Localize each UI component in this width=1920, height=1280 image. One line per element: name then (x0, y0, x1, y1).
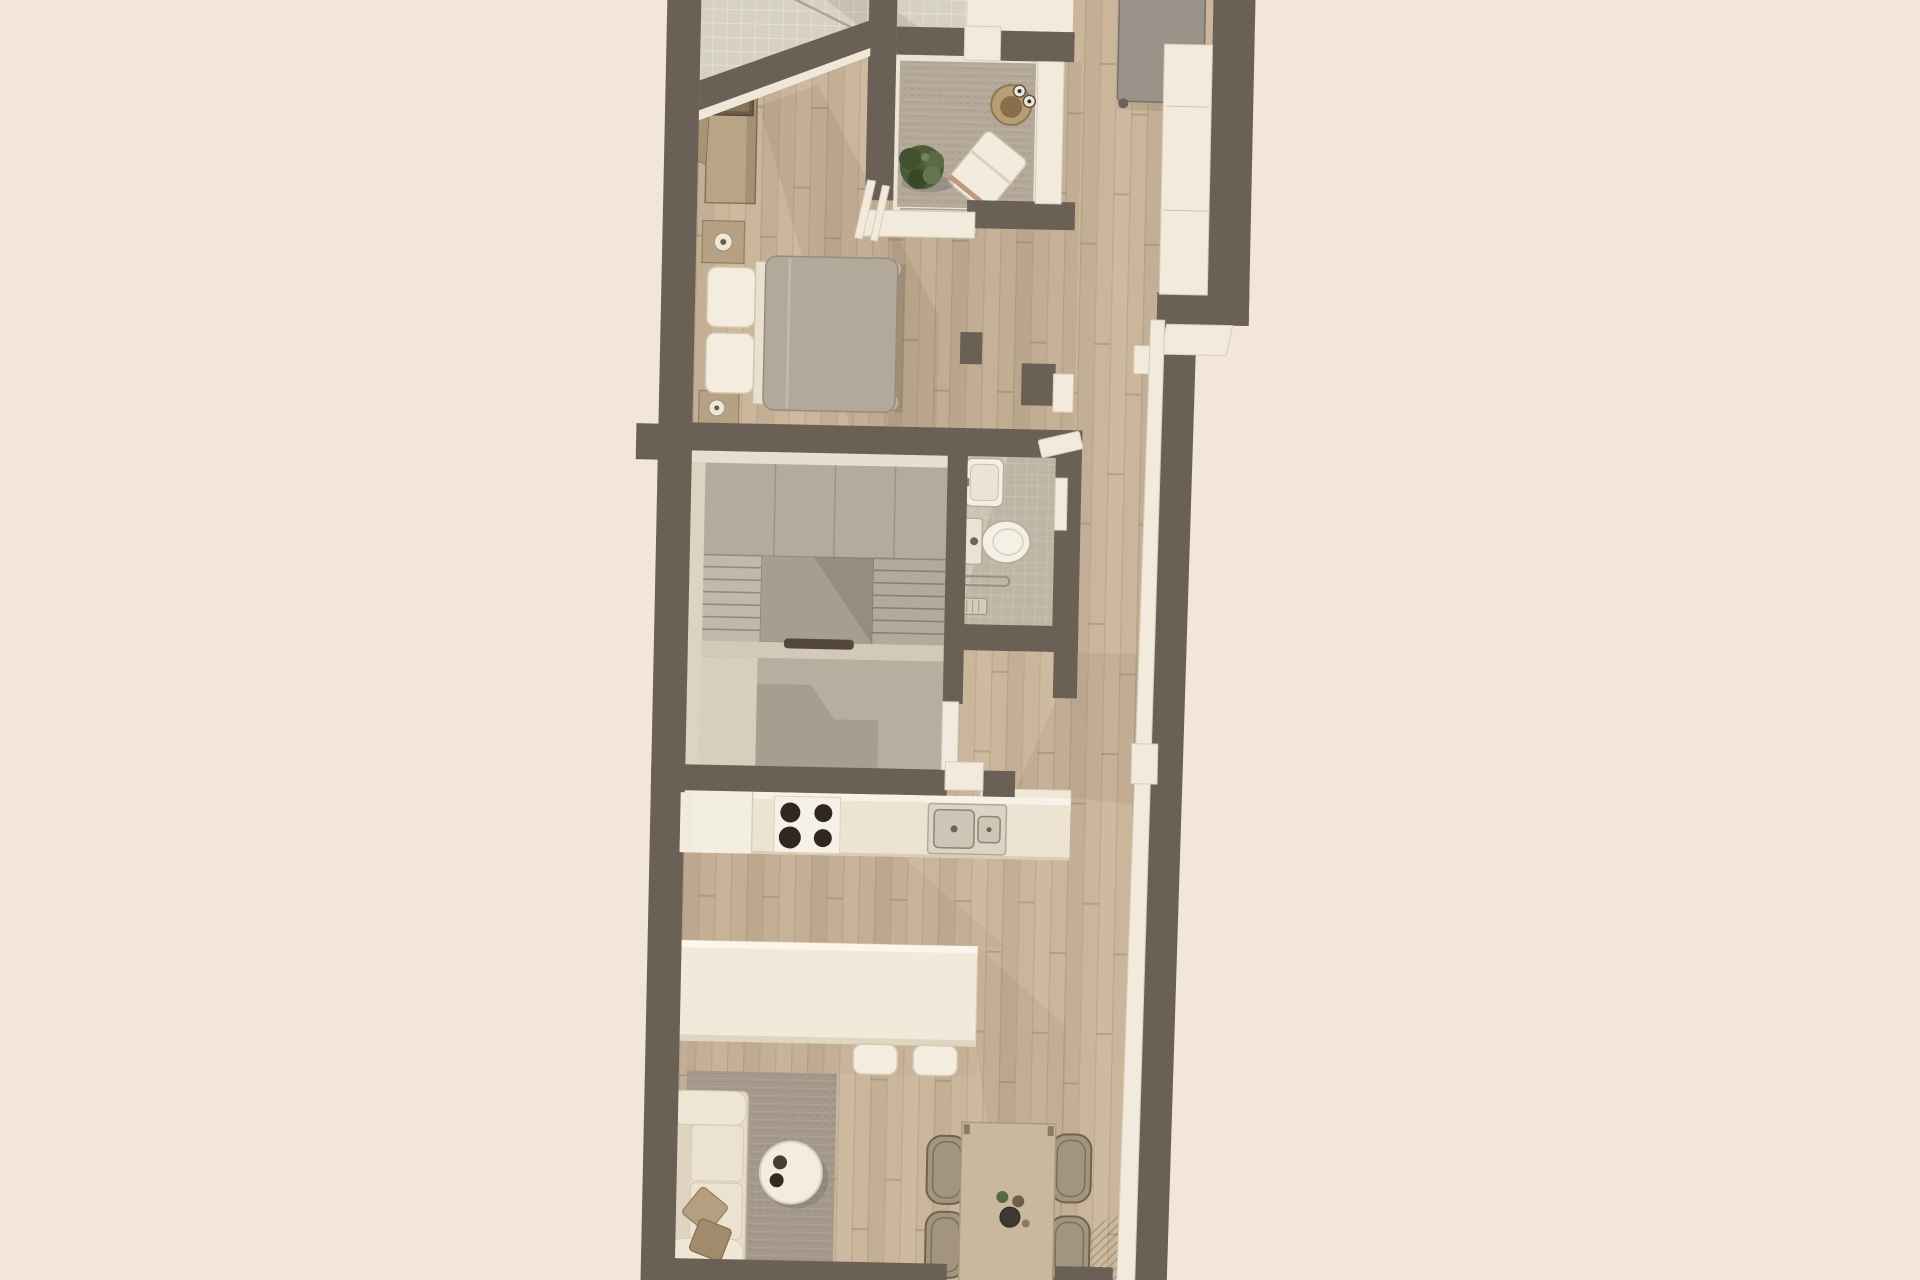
wall-inner-face (679, 792, 693, 852)
toilet-icon (964, 518, 1031, 565)
apartment-plan (618, 0, 1256, 1280)
door-leaf (941, 702, 958, 770)
wall-entry-stub-a (960, 332, 983, 364)
window-sill (1131, 744, 1158, 785)
bathroom (956, 456, 1055, 626)
dining-table (958, 1122, 1055, 1280)
wall-entry-stub-b (1021, 363, 1056, 406)
wicker-chair (1050, 1134, 1091, 1203)
wall-kitchen-back-right (983, 771, 1016, 798)
wall-bottom-right (1054, 1266, 1113, 1280)
wall-right-upper (1207, 0, 1257, 326)
kitchen-sink-icon (928, 803, 1007, 855)
nightstand (698, 390, 739, 425)
stool (913, 1045, 958, 1076)
staircase-hall (685, 450, 948, 769)
living-room (666, 1070, 836, 1280)
sofa (667, 1090, 749, 1274)
stool (853, 1044, 898, 1075)
double-bed (705, 255, 906, 413)
floor-plan-render (0, 0, 1920, 1280)
wall-balcony-top-right (998, 31, 1075, 63)
stair-handrail (784, 638, 854, 649)
pillow (707, 267, 756, 328)
window-sill (1159, 44, 1212, 295)
bowl-icon (1000, 1207, 1020, 1227)
balcony-window-sill (1035, 62, 1064, 205)
wall-stub (1053, 652, 1078, 698)
window-sill (1053, 374, 1074, 412)
window-sill (1054, 478, 1067, 530)
nightstand (702, 221, 745, 264)
screenshot-canvas (0, 0, 1920, 1280)
pillow (705, 333, 754, 394)
door-leaf (945, 762, 984, 791)
balcony-door-opening (964, 26, 1001, 61)
wall-balcony-bottom (967, 200, 1076, 230)
wall-bathroom-right (1052, 430, 1083, 652)
duvet (763, 256, 898, 413)
cooktop-icon (774, 796, 841, 853)
wall-bathroom-bottom (954, 624, 1079, 653)
window-sill (1160, 324, 1233, 356)
wall-balcony-top (896, 27, 967, 56)
stair-upper-flight (704, 463, 948, 560)
